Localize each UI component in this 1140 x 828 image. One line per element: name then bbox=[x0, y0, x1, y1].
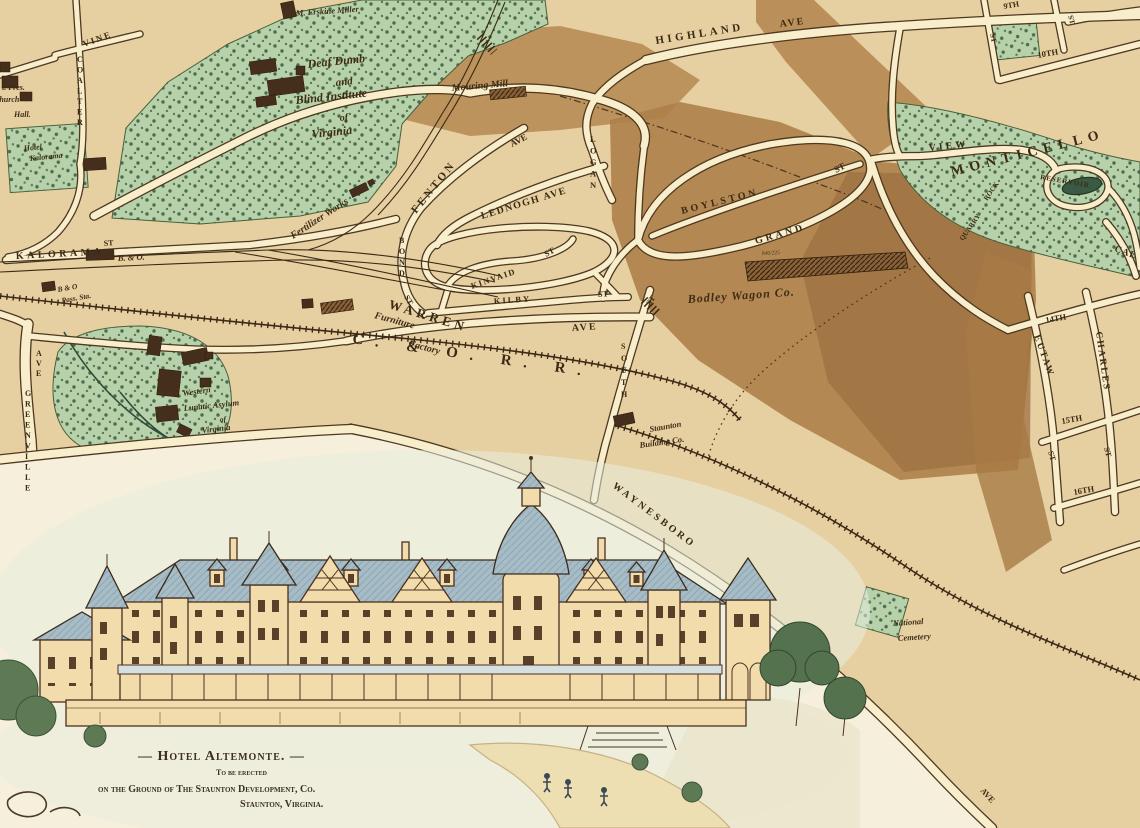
map-label-pres-3: Hall. bbox=[13, 110, 31, 119]
hotel-altemonte-illustration bbox=[0, 450, 870, 828]
map-label-caption-4: Staunton, Virginia. bbox=[240, 799, 324, 810]
map-label-coalter: COALTER bbox=[77, 55, 83, 127]
map-label-warren-ave: AVE bbox=[571, 321, 598, 334]
map-label-caption-3: on the Ground of The Staunton Developmen… bbox=[98, 784, 316, 795]
map-label-pres-1: t. Pres. bbox=[2, 83, 25, 92]
map-label-pres-2: Church bbox=[0, 95, 20, 104]
map-label-st-tr2: ST bbox=[988, 33, 999, 44]
map-label-caption-1: — Hotel Altemonte. — bbox=[137, 749, 305, 764]
staunton-map-canvas: VINECOALTERKALORAMASTAVEGREENVILLEHIGHLA… bbox=[0, 0, 1140, 828]
map-label-kalorama-st: ST bbox=[103, 238, 114, 248]
vintage-map-staunton: VINECOALTERKALORAMASTAVEGREENVILLEHIGHLA… bbox=[0, 0, 1140, 828]
map-label-caption-2: To be erected bbox=[216, 768, 268, 777]
map-label-kilby-st: ST bbox=[597, 288, 608, 299]
map-label-bodley-dim: 840/225 bbox=[762, 250, 781, 257]
map-label-b-and-o: B. & O. bbox=[117, 252, 145, 263]
map-label-greenville-ave: AVE bbox=[36, 349, 42, 378]
map-label-greenville: GREENVILLE bbox=[25, 389, 31, 493]
